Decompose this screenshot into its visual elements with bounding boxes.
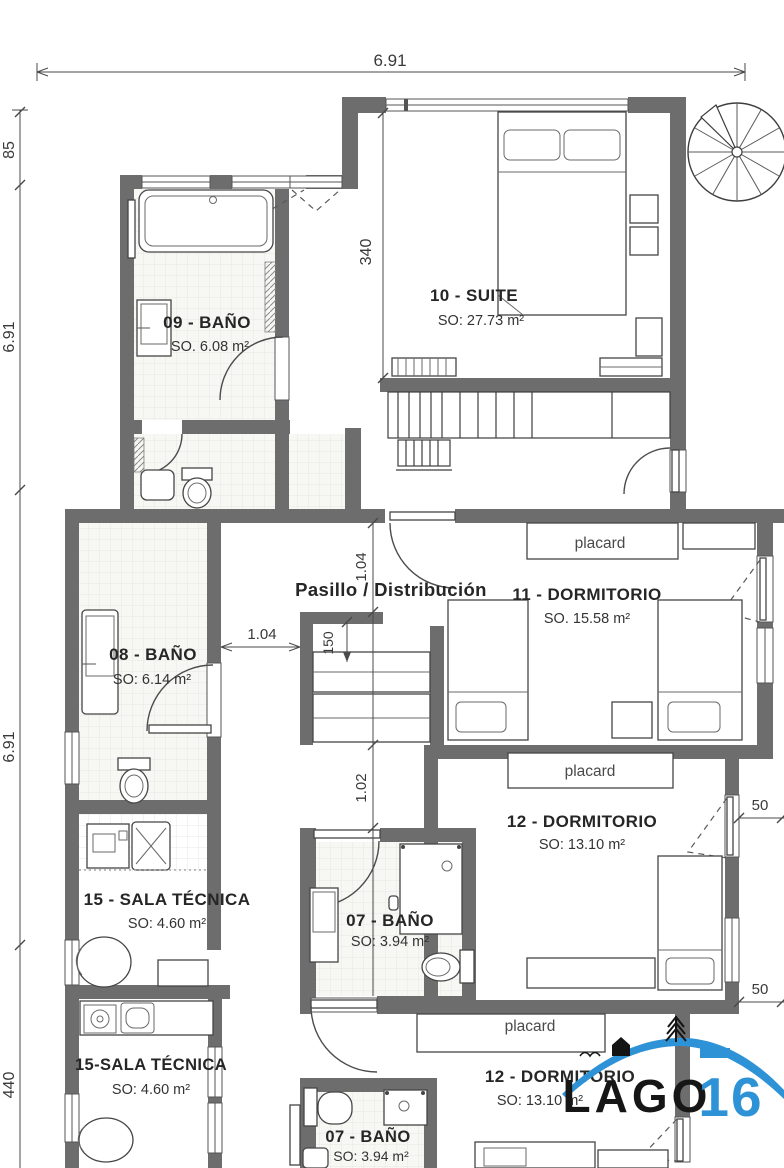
dim-left-691b: 6.91 [1,731,18,762]
dim-left-85: 85 [1,141,18,159]
staircase [388,392,670,470]
label-placard-2: placard [565,763,616,780]
area-dorm12: SO: 13.10 m² [539,837,625,853]
suite-shelf-b [630,227,658,255]
bed-dorm12 [658,856,722,990]
shelf-strip-bath09 [265,262,276,332]
floor-plan-canvas: 6.91 85 6.91 6.91 440 340 1.04 1.04 1.02… [0,0,784,1168]
logo-house-icon [612,1037,630,1056]
bed-dorm11-a [448,600,528,740]
bed-dorm12b-2 [598,1150,668,1168]
appliance-unit [132,822,170,870]
label-dorm11: 11 - DORMITORIO [512,585,661,604]
area-bano09: SO. 6.08 m² [171,339,249,355]
bed-dorm12b [475,1142,595,1168]
corridor-leaf [290,1105,300,1165]
sink-bath07b [303,1148,328,1168]
label-bano07: 07 - BAÑO [346,910,434,930]
door-dorm12-balcony [688,795,739,858]
dim-left-691a: 6.91 [1,321,18,352]
pet-bed-1 [76,937,131,987]
window-hall-top [290,176,342,211]
window-sala2-b [208,1103,222,1153]
suite-dresser [600,358,662,376]
logo-text-lago: LAGO [563,1070,712,1122]
spiral-staircase [688,103,784,201]
logo-text-16: 16 [698,1066,763,1128]
toilet-bath08 [118,758,150,803]
logo-bird-icon [580,1053,600,1057]
area-suite10: SO: 27.73 m² [438,313,524,329]
label-placard-3: placard [505,1018,556,1035]
label-sala15: 15 - SALA TÉCNICA [84,890,251,909]
nightstand-dorm11 [612,702,652,738]
dim-offset-50a: 50 [752,797,769,814]
bench-sala1 [158,960,208,986]
suite-nightstand [636,318,662,356]
bed-dorm11-b [658,600,742,740]
dim-hall-104v: 1.04 [353,552,370,581]
placard-box-1 [527,523,755,559]
shower-bath07b [384,1090,427,1125]
door-dorm11 [390,512,455,588]
label-pasillo: Pasillo / Distribución [295,579,487,600]
vanity-bath07 [310,888,338,962]
area-bano07: SO: 3.94 m² [351,934,429,950]
dim-hall-104: 1.04 [247,626,276,643]
suite-radiator [392,358,456,376]
window-dorm12-right [725,918,739,982]
label-bano09: 09 - BAÑO [163,312,251,332]
wc-toilet [182,468,212,508]
toilet-bath07b [304,1088,352,1126]
desk-dorm12 [527,958,655,988]
suite-shelf-a [630,195,658,223]
sala2-counter [80,1001,213,1035]
label-bano07b: 07 - BAÑO [325,1126,410,1146]
area-dorm11: SO. 15.58 m² [544,611,630,627]
appliance-oven [87,824,129,868]
door-bottom-corridor [311,998,377,1072]
dim-top-width: 6.91 [373,51,406,70]
area-sala15: SO: 4.60 m² [128,916,206,932]
label-placard-1: placard [575,535,626,552]
label-suite10: 10 - SUITE [430,286,518,305]
wc-hatch [134,438,144,472]
label-bano08: 08 - BAÑO [109,644,197,664]
window-dorm11-right [757,628,773,683]
area-bano07b: SO: 3.94 m² [333,1148,409,1164]
window-left-3 [65,1094,79,1142]
door-suite-landing [624,448,686,494]
label-dorm12: 12 - DORMITORIO [507,812,657,831]
bathtub [139,190,273,252]
dim-hall-102v: 1.02 [353,773,370,802]
area-bano08: SO: 6.14 m² [113,672,191,688]
window-left-1 [65,732,79,784]
dim-offset-50b: 50 [752,981,769,998]
dim-suite-340: 340 [358,239,375,266]
dim-left-440: 440 [1,1072,18,1099]
floor-plan: 6.91 85 6.91 6.91 440 340 1.04 1.04 1.02… [0,0,784,1168]
window-suite-top [386,99,628,111]
cabinet-bath09 [128,200,135,258]
pet-bed-2 [78,1118,133,1162]
hall-closet [313,652,430,742]
area-sala15b: SO: 4.60 m² [112,1082,190,1098]
suite-bed [498,112,626,315]
accessory-bath07 [389,896,398,910]
toilet-bath07 [422,950,474,983]
logo-building-icon [700,1048,730,1058]
dim-closet-150: 150 [320,631,336,655]
wc-sink [141,470,174,500]
label-sala15b: 15-SALA TÉCNICA [75,1055,227,1074]
